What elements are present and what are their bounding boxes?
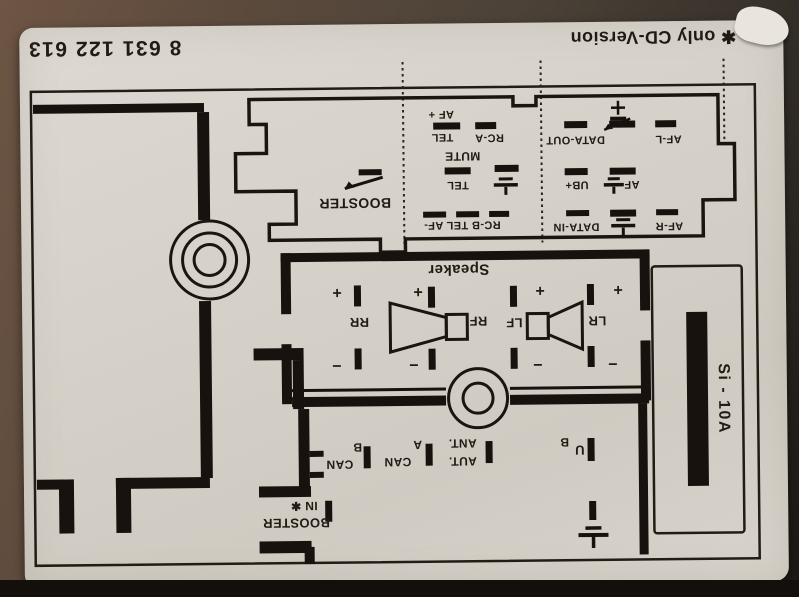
pin-label-ub-plus: UB+ xyxy=(565,179,589,190)
ground-icon-tel xyxy=(494,179,518,195)
pin-label-rcb-tel-af: RC-B TEL AF- xyxy=(424,218,501,230)
pin-label-mute: MUTE xyxy=(445,150,481,162)
pin-label-af-l: AF-L xyxy=(655,133,682,144)
chassis-outline-bars xyxy=(33,103,213,534)
pin-label-af-plus: AF + xyxy=(428,108,454,119)
photo-of-wiring-label: 8 631 122 613 ✱ only CD-Version BOOSTER … xyxy=(0,0,799,597)
diagram-border xyxy=(31,84,760,566)
label-sticker: 8 631 122 613 ✱ only CD-Version BOOSTER … xyxy=(0,0,799,597)
polarity-minus-lr: − xyxy=(608,355,618,371)
pin-label-tel-2: TEL xyxy=(447,179,469,190)
polarity-plus-rr: + xyxy=(332,284,342,300)
pin-label-can-2: CAN xyxy=(384,456,411,468)
pin-label-can-b: B xyxy=(353,441,362,453)
speaker-label-lr: LR xyxy=(588,314,606,327)
pin-label-can-a: A xyxy=(413,439,422,451)
version-note: ✱ only CD-Version xyxy=(570,27,736,47)
pin-label-data-out: DATA-OUT xyxy=(546,133,605,145)
ground-icon-data xyxy=(611,220,635,236)
pin-label-rc-a: RC-A xyxy=(475,131,504,142)
diagram-linework xyxy=(0,0,799,597)
booster-in-label: BOOSTER xyxy=(263,516,330,530)
polarity-plus-lr: + xyxy=(613,281,623,297)
pin-label-af-r: AF-R xyxy=(655,220,683,231)
lower-connector-pins xyxy=(324,438,596,523)
pin-label-in-star: IN ✱ xyxy=(291,500,318,512)
polarity-minus-lf: − xyxy=(533,356,543,372)
pin-label-can-1: CAN xyxy=(326,458,353,470)
pin-label-u: U xyxy=(575,444,585,457)
ground-icon-battery xyxy=(578,528,608,548)
polarity-minus-rr: − xyxy=(332,357,342,373)
pin-label-aut: AUT. xyxy=(449,455,477,467)
pin-label-af: AF xyxy=(624,178,640,189)
polarity-minus-rf: − xyxy=(409,356,419,372)
speaker-icon-rr-rf xyxy=(390,302,468,352)
fuse-bar xyxy=(686,312,709,486)
ground-icon-af xyxy=(604,179,624,194)
speaker-title: Speaker xyxy=(428,262,489,278)
pin-label-ub-b: B xyxy=(560,436,569,448)
polarity-plus-lf: + xyxy=(535,281,545,297)
pin-label-tel: TEL xyxy=(431,131,453,142)
pin-label-ant: ANT. xyxy=(448,437,476,449)
fuse-label: Si - 10A xyxy=(715,363,732,434)
speaker-label-lf: LF xyxy=(506,316,523,329)
booster-label: BOOSTER xyxy=(319,196,391,211)
polarity-plus-rf: + xyxy=(413,283,423,299)
pin-label-data-in: DATA-IN xyxy=(553,220,600,231)
speaker-icon-lf-lr xyxy=(527,302,582,350)
screw-hole-icon-center xyxy=(448,368,508,428)
part-number: 8 631 122 613 xyxy=(27,37,181,60)
booster-switch-icon xyxy=(345,169,383,188)
screw-hole-icon-left xyxy=(170,221,249,300)
speaker-label-rr: RR xyxy=(349,316,369,329)
speaker-label-rf: RF xyxy=(469,315,487,328)
